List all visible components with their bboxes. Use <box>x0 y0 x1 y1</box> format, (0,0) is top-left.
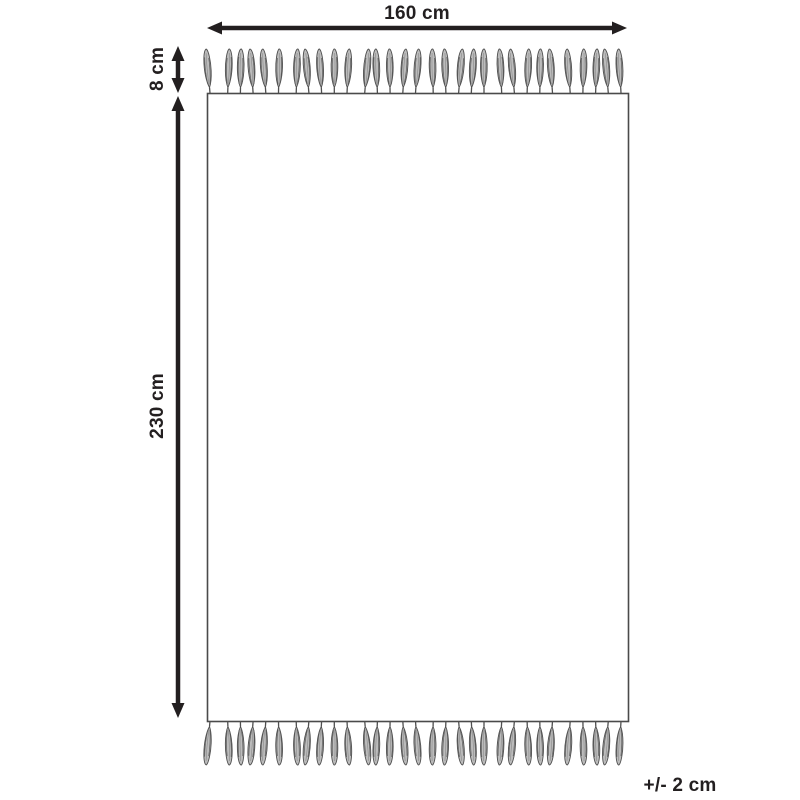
tassel <box>316 721 325 765</box>
tassel <box>536 721 543 765</box>
tassel <box>259 721 269 765</box>
tassel <box>412 49 422 93</box>
tassel <box>480 721 487 765</box>
tassel <box>441 721 449 765</box>
tassel <box>546 49 556 93</box>
tassel <box>386 49 393 93</box>
fringe-dimension-arrow <box>172 46 185 93</box>
tassel <box>386 721 393 765</box>
fringe-dimension-label: 8 cm <box>147 47 169 91</box>
tassel <box>580 721 587 765</box>
tassel <box>429 49 436 93</box>
tassel <box>302 49 313 93</box>
tassel <box>331 721 338 765</box>
height-dimension-label: 230 cm <box>147 373 169 439</box>
tassel <box>507 49 518 93</box>
tassel <box>455 721 466 765</box>
tassel <box>524 49 532 93</box>
tassel <box>203 49 214 93</box>
tassel <box>455 49 466 93</box>
tassel <box>580 49 587 93</box>
tassel <box>399 721 409 765</box>
tassel <box>203 721 214 765</box>
tassel <box>293 49 301 93</box>
tassel <box>372 49 380 93</box>
tassel <box>372 721 380 765</box>
rug-outline <box>208 94 629 722</box>
tassel <box>564 721 574 765</box>
tassel <box>224 721 232 765</box>
tassel <box>362 721 373 765</box>
tolerance-label: +/- 2 cm <box>644 775 717 797</box>
width-dimension-label: 160 cm <box>384 3 450 25</box>
diagram-drawing <box>0 0 800 800</box>
tassel <box>496 49 505 93</box>
tassel <box>524 721 532 765</box>
tassel <box>259 49 269 93</box>
tassel <box>592 49 600 93</box>
tassel <box>237 49 244 93</box>
tassel <box>468 49 477 93</box>
top-fringe <box>203 49 625 93</box>
height-dimension-arrow <box>172 96 185 718</box>
tassel <box>224 49 232 93</box>
tassel <box>615 49 624 93</box>
tassel <box>468 721 477 765</box>
tassel <box>362 49 373 93</box>
rug-dimension-diagram: 160 cm 8 cm 230 cm +/- 2 cm <box>0 0 800 800</box>
tassel <box>302 721 313 765</box>
tassel <box>592 721 600 765</box>
tassel <box>429 721 436 765</box>
tassel <box>536 49 543 93</box>
tassel <box>601 49 612 93</box>
tassel <box>344 721 353 765</box>
tassel <box>507 721 518 765</box>
tassel <box>275 49 282 93</box>
tassel <box>293 721 301 765</box>
bottom-fringe <box>203 721 625 765</box>
tassel <box>344 49 353 93</box>
tassel <box>441 49 449 93</box>
tassel <box>275 721 282 765</box>
tassel <box>615 721 624 765</box>
tassel <box>316 49 325 93</box>
tassel <box>601 721 612 765</box>
tassel <box>496 721 505 765</box>
tassel <box>237 721 244 765</box>
tassel <box>546 721 556 765</box>
tassel <box>399 49 409 93</box>
tassel <box>480 49 487 93</box>
tassel <box>564 49 574 93</box>
tassel <box>247 721 257 765</box>
tassel <box>331 49 338 93</box>
tassel <box>412 721 422 765</box>
tassel <box>247 49 257 93</box>
